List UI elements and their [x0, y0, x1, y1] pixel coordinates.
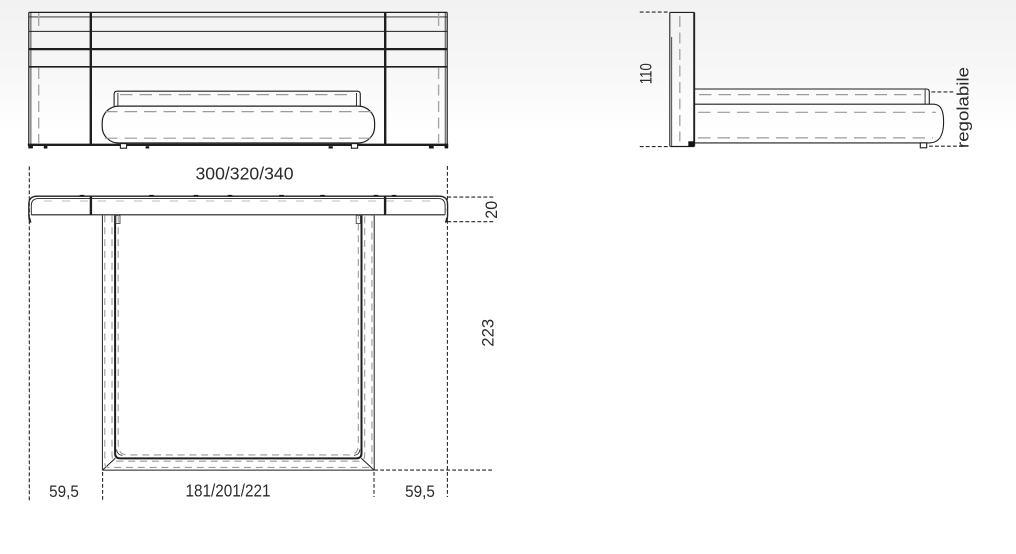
svg-text:181/201/221: 181/201/221: [186, 481, 271, 501]
svg-text:223: 223: [479, 319, 498, 347]
svg-text:regolabile: regolabile: [954, 67, 973, 148]
svg-text:20: 20: [482, 201, 501, 219]
svg-text:300/320/340: 300/320/340: [196, 164, 294, 184]
svg-text:59,5: 59,5: [405, 482, 435, 501]
svg-text:110: 110: [637, 63, 656, 84]
svg-text:59,5: 59,5: [49, 482, 79, 501]
